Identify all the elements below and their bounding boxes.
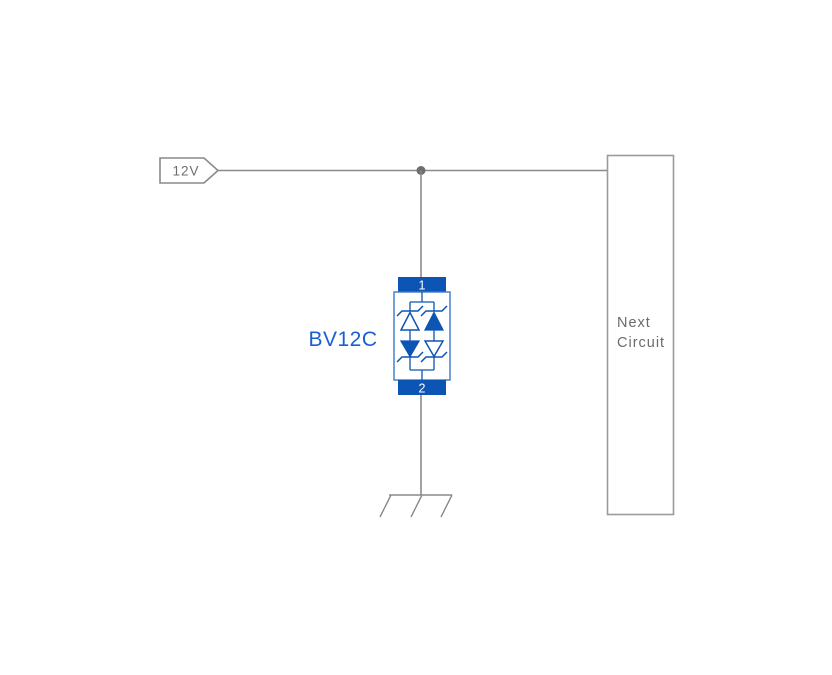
schematic-svg: 12V 1 2: [0, 0, 832, 675]
next-circuit-label-line2: Circuit: [617, 335, 665, 351]
chassis-ground-icon: [380, 495, 452, 517]
pin-2-label: 2: [419, 382, 426, 396]
pin-1-label: 1: [419, 279, 426, 293]
next-circuit-block: Next Circuit: [608, 156, 674, 515]
circuit-diagram: 12V 1 2: [0, 0, 832, 675]
power-net-label: 12V: [172, 164, 199, 179]
component-body: [394, 292, 450, 380]
next-circuit-label-line1: Next: [617, 315, 651, 331]
tvs-diode-component: 1 2: [394, 277, 450, 396]
power-net-flag: 12V: [160, 158, 218, 183]
ground-symbol-strokes: [380, 495, 452, 517]
component-label: BV12C: [308, 328, 377, 351]
